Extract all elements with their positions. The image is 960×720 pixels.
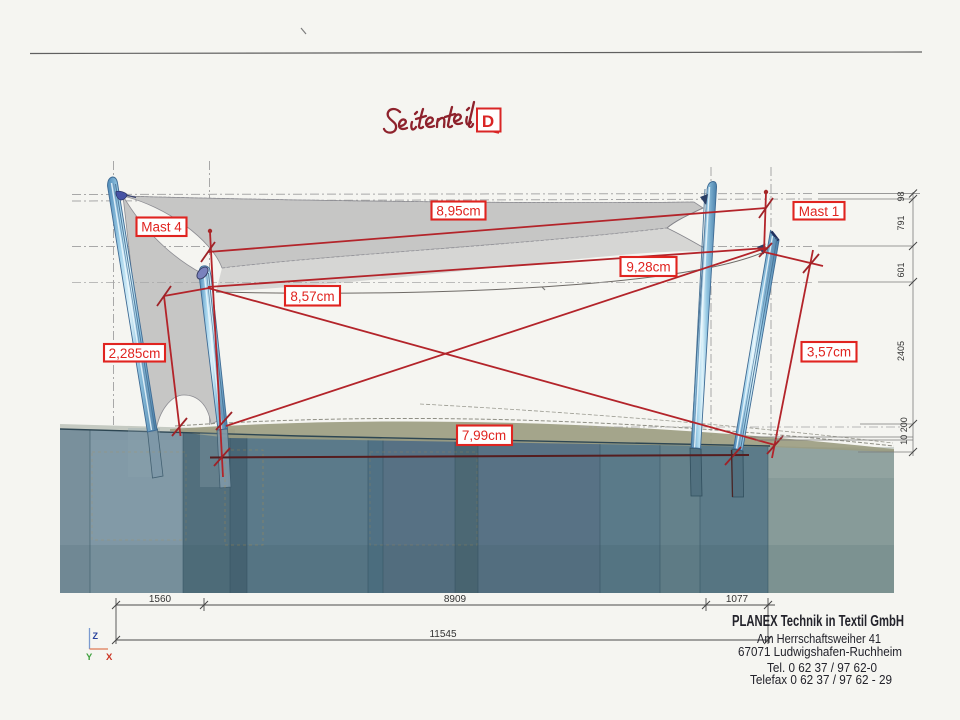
- svg-text:791: 791: [896, 215, 906, 230]
- svg-text:8,95cm: 8,95cm: [436, 204, 480, 219]
- svg-text:9,28cm: 9,28cm: [626, 260, 670, 275]
- svg-text:1560: 1560: [149, 594, 172, 605]
- svg-text:Am Herrschaftsweiher 41: Am Herrschaftsweiher 41: [757, 632, 881, 646]
- svg-text:67071 Ludwigshafen-Ruchheim: 67071 Ludwigshafen-Ruchheim: [738, 645, 902, 659]
- svg-text:Mast 4: Mast 4: [141, 220, 182, 235]
- svg-text:601: 601: [896, 262, 906, 277]
- svg-text:98: 98: [896, 191, 906, 201]
- svg-text:Telefax 0 62 37 / 97 62 - 29: Telefax 0 62 37 / 97 62 - 29: [750, 672, 892, 687]
- svg-text:8,57cm: 8,57cm: [290, 289, 334, 304]
- svg-text:X: X: [106, 652, 113, 663]
- svg-text:10 200: 10 200: [899, 417, 909, 445]
- svg-text:11545: 11545: [429, 629, 457, 640]
- svg-text:Mast 1: Mast 1: [799, 204, 840, 219]
- svg-text:Y: Y: [86, 652, 93, 663]
- svg-text:D: D: [482, 112, 494, 131]
- svg-text:Z: Z: [93, 631, 99, 641]
- svg-text:2,285cm: 2,285cm: [109, 346, 161, 361]
- svg-text:8909: 8909: [444, 594, 467, 605]
- svg-text:PLANEX Technik in Textil GmbH: PLANEX Technik in Textil GmbH: [732, 613, 904, 630]
- svg-text:7,99cm: 7,99cm: [462, 428, 506, 443]
- svg-text:3,57cm: 3,57cm: [807, 345, 851, 360]
- svg-text:1077: 1077: [726, 594, 749, 605]
- svg-text:2405: 2405: [896, 341, 906, 361]
